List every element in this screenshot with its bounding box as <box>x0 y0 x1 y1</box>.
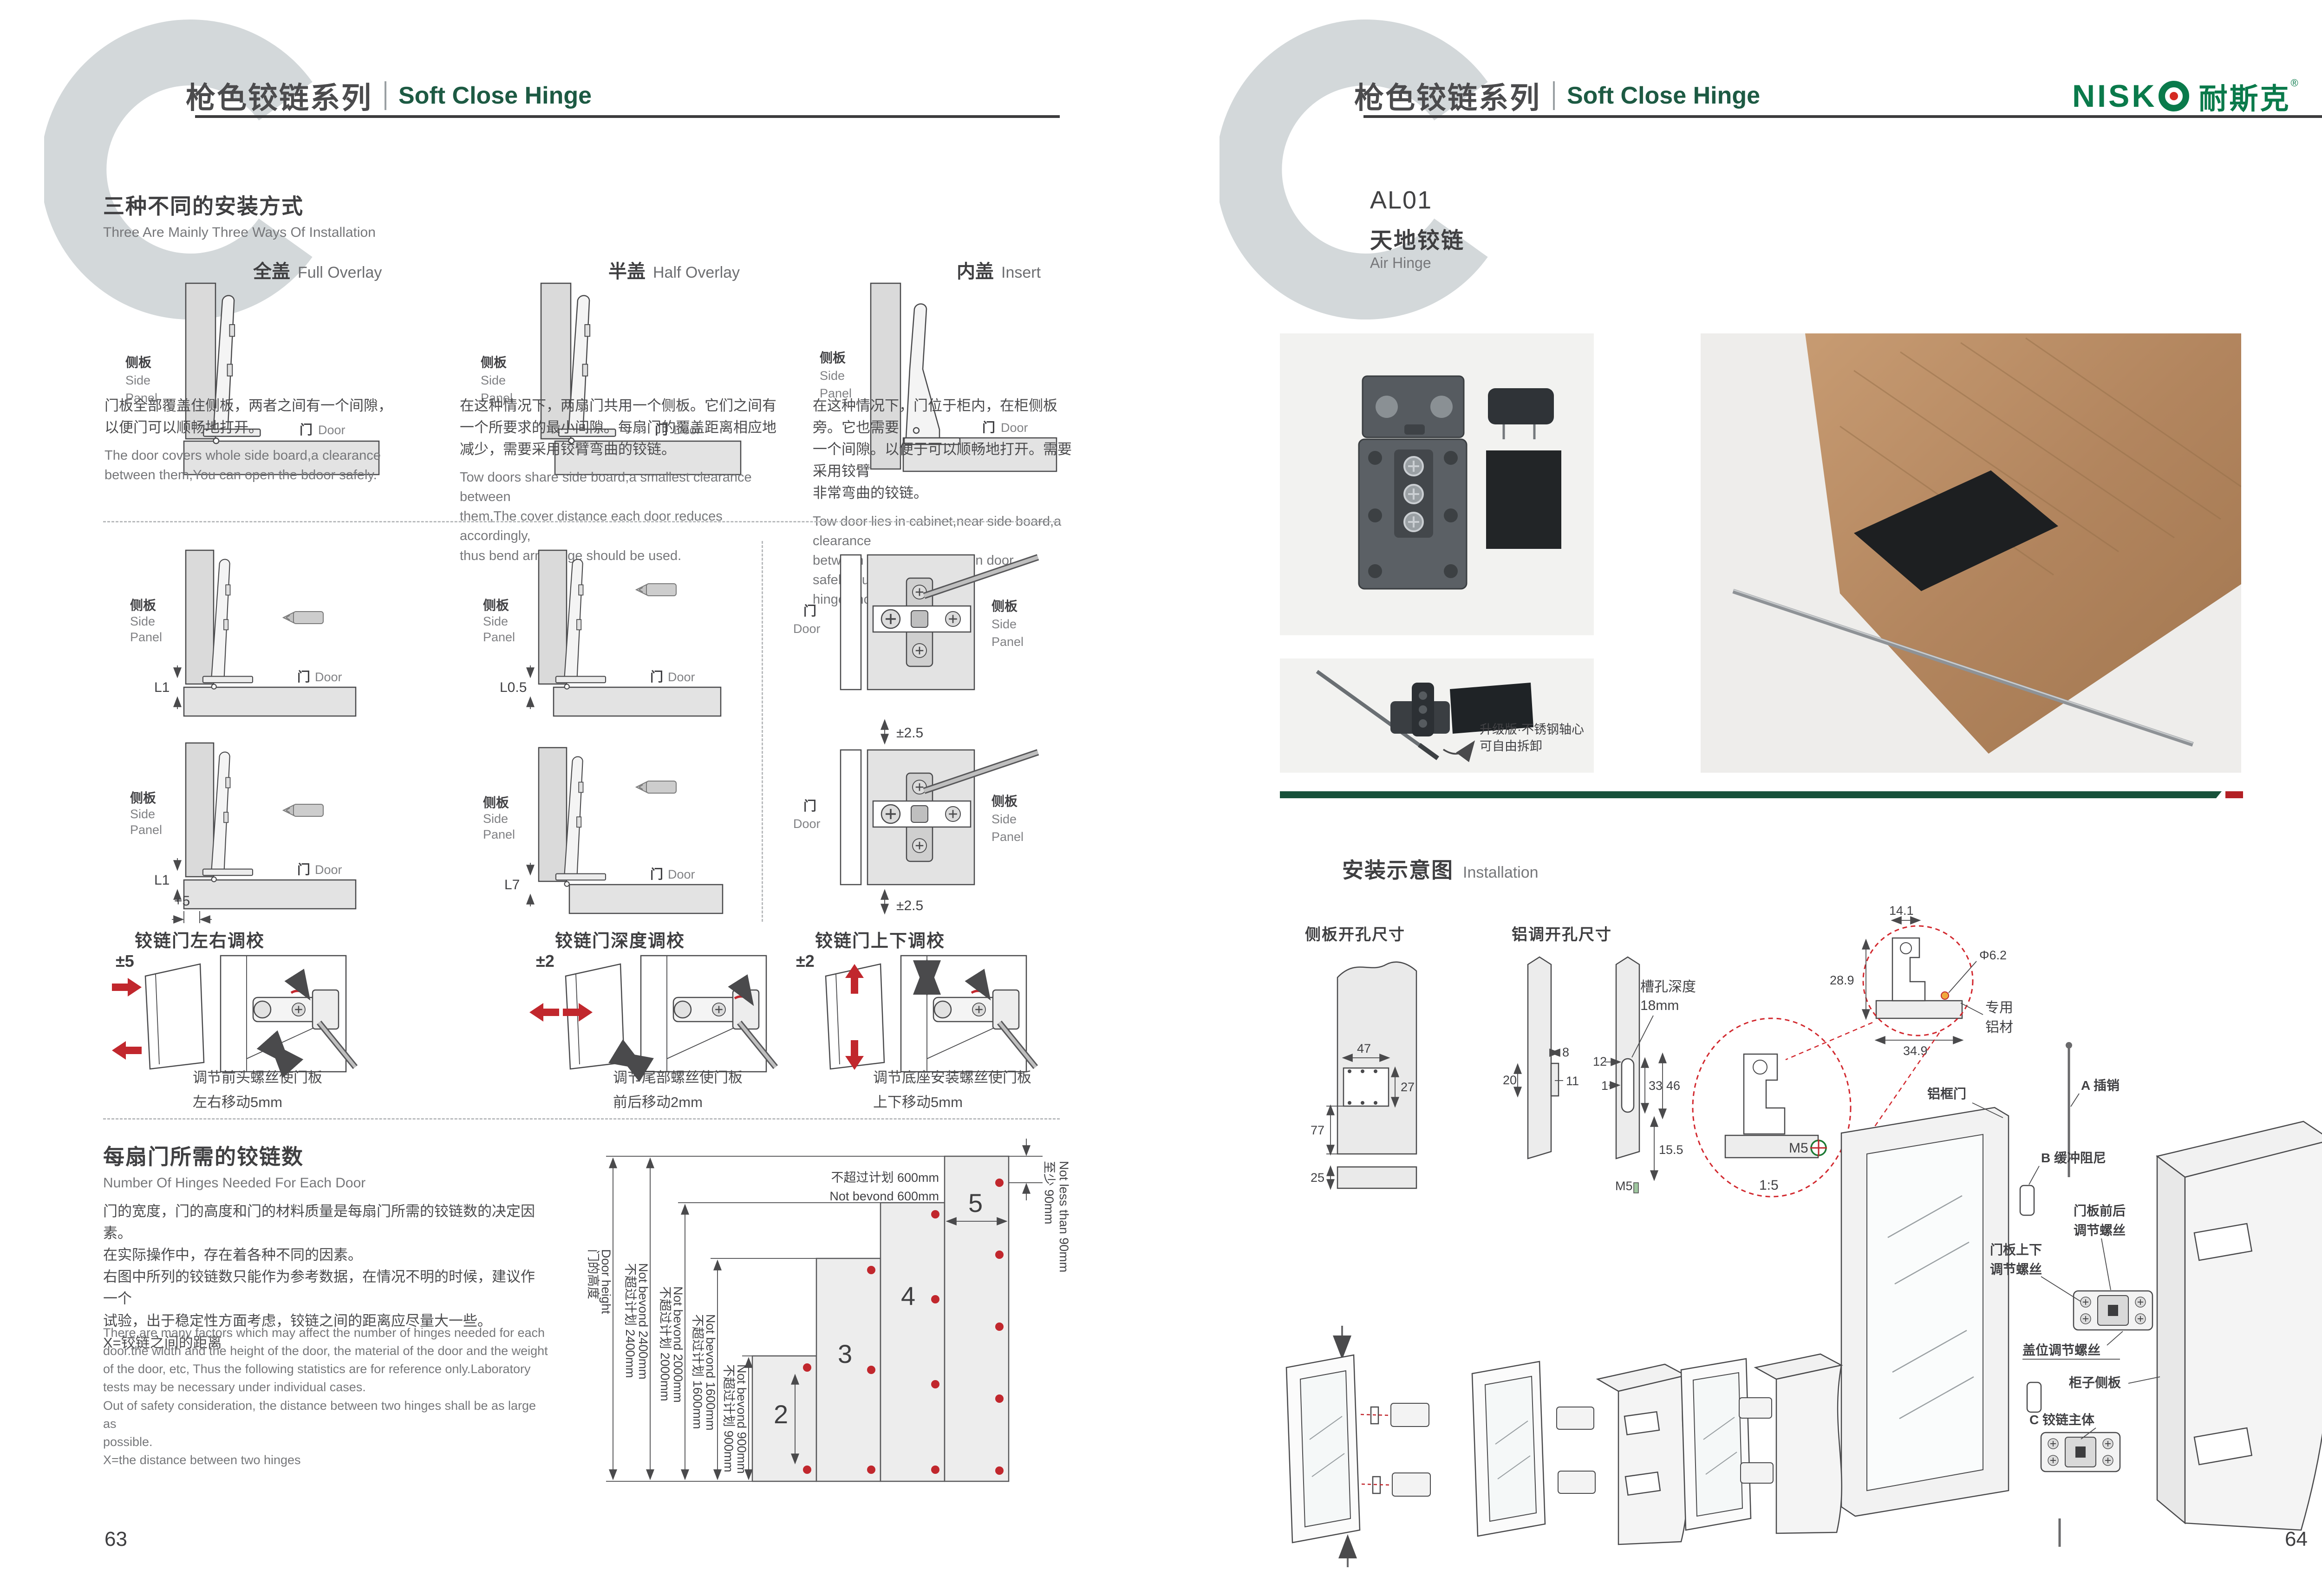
label-c-hinge: C 铰链主体 <box>2029 1412 2095 1427</box>
desc-cn: 在这种情况下，门位于柜内，在柜侧板旁。它也需要 一个间隙。以便于可以顺畅地打开。… <box>813 395 1073 504</box>
method-desc-half: 在这种情况下，两扇门共用一个侧板。它们之间有 一个所要求的最小间隙。每扇门的覆盖… <box>460 395 785 566</box>
side-panel-label-en1: Side <box>991 617 1017 631</box>
dashed-separator-2 <box>103 1118 1060 1120</box>
dashed-separator-1 <box>103 521 1060 522</box>
watermark-c-icon <box>1220 9 1521 330</box>
dim-77: 77 <box>1311 1123 1324 1137</box>
hinge-count-title: 每扇门所需的铰链数 Number Of Hinges Needed For Ea… <box>103 1140 365 1191</box>
side-drill-title: 侧板开孔尺寸 <box>1305 922 1405 945</box>
side-drill-diagram: 47 27 77 25 <box>1296 945 1463 1205</box>
hinge-count-chart: 2 3 4 5 门的高度 Door height 不超过计划 2400mm No… <box>534 1133 1105 1542</box>
dim-plus5: +5 <box>174 893 190 909</box>
limit-2000-cn: 不超过计划 2000mm <box>658 1286 672 1401</box>
product-name-cn: 天地铰链 <box>1370 222 1465 254</box>
dim-46: 46 <box>1666 1079 1680 1093</box>
profile-label-2: 铝材 <box>1985 1020 2013 1035</box>
door-label-en: Door <box>668 670 695 684</box>
width-limit-en: Not bevond 600mm <box>829 1189 939 1203</box>
limit-1600-en: Not bevond 1600mm <box>704 1314 717 1431</box>
plate-diagram-2: ±2.5 ±2.5 门 Door 侧板 Side Panel <box>785 715 1063 919</box>
dim-diagram-l05: L0.5 侧板 Side Panel 门 Door <box>469 546 729 722</box>
side-panel-label-en2: Panel <box>130 823 162 837</box>
ways-title-en: Three Are Mainly Three Ways Of Installat… <box>103 225 376 241</box>
dim-diagram-l1: L1 侧板 Side Panel 门 Door <box>116 546 376 722</box>
product-name-en: Air Hinge <box>1370 254 1431 272</box>
adjust-diagram-lr: ±5 <box>109 943 369 1087</box>
installation-title-cn: 安装示意图 <box>1342 853 1454 884</box>
ways-section-title: 三种不同的安装方式 Three Are Mainly Three Ways Of… <box>103 189 376 241</box>
adjust-range: ±2 <box>796 951 815 971</box>
adjust-range: ±2 <box>536 951 554 971</box>
dim-47: 47 <box>1357 1042 1371 1055</box>
dim-l05: L0.5 <box>500 680 527 695</box>
hinge-count-title-en: Number Of Hinges Needed For Each Door <box>103 1175 365 1191</box>
door-label-en: Door <box>793 817 821 831</box>
caption-line1: 调节尾部螺丝使门板 <box>613 1066 743 1090</box>
door-label-en: Door <box>315 863 342 877</box>
top-margin-en: Not less than 90mm <box>1057 1161 1071 1272</box>
dim-plate-top: ±2.5 <box>896 725 923 741</box>
side-panel-label-en2: Panel <box>130 630 162 644</box>
method-desc-full: 门板全部覆盖住侧板，两者之间有一个间隙， 以便门可以顺畅地打开。 The doo… <box>104 395 430 485</box>
ways-title-cn: 三种不同的安装方式 <box>103 189 376 220</box>
dim-m5: M5 <box>1615 1179 1633 1193</box>
door-label-en: Door <box>315 670 342 684</box>
slot-depth-value: 18mm <box>1640 998 1679 1013</box>
desc-cn: 门板全部覆盖住侧板，两者之间有一个间隙， 以便门可以顺畅地打开。 <box>104 395 430 438</box>
adjust-caption-ud: 调节底座安装螺丝使门板 上下移动5mm <box>873 1066 1031 1114</box>
label-alu-door: 铝框门 <box>1927 1087 1966 1101</box>
dim-diagram-l7: L7 侧板 Side Panel 门 Door <box>469 743 729 919</box>
door-label-cn: 门 <box>297 670 310 684</box>
dim-l1: L1 <box>154 873 170 888</box>
brand-logo: NISK 耐斯克 ® <box>2072 75 2298 117</box>
header-rule-left <box>195 115 1060 118</box>
profile-label-1: 专用 <box>1985 1000 2013 1016</box>
dim-20: 20 <box>1503 1073 1517 1087</box>
dim-11: 11 <box>1566 1074 1579 1088</box>
series-title-en: Soft Close Hinge <box>1567 82 1760 110</box>
dim-l7: L7 <box>504 877 520 892</box>
caption-line2: 左右移动5mm <box>193 1090 322 1115</box>
page-header-left: 枪色铰链系列 Soft Close Hinge <box>186 74 592 117</box>
top-margin-cn: 至少 90mm <box>1042 1161 1056 1225</box>
limit-900-en: Not bevond 900mm <box>735 1364 749 1474</box>
side-panel-label-cn: 侧板 <box>483 598 509 612</box>
width-limit-cn: 不超过计划 600mm <box>831 1171 939 1185</box>
product-code: AL01 <box>1370 186 1432 215</box>
logo-latin: NISK <box>2072 78 2157 114</box>
door-label-en: Door <box>793 622 821 636</box>
product-photo-rod: 升级版·不锈钢轴心 可自由拆卸 <box>1280 658 1594 773</box>
side-panel-label-en2: Panel <box>991 830 1024 844</box>
divider-red-bar <box>2225 791 2243 798</box>
page-header-right: 枪色铰链系列 Soft Close Hinge <box>1354 74 1760 117</box>
caption-line2: 前后移动2mm <box>613 1090 743 1115</box>
dim-33: 33 <box>1649 1079 1663 1093</box>
adjust-caption-depth: 调节尾部螺丝使门板 前后移动2mm <box>613 1066 743 1114</box>
header-divider <box>1553 81 1555 110</box>
divider-green-bar <box>1280 791 2222 798</box>
hinge-count-desc-en: There are many factors which may affect … <box>103 1324 549 1469</box>
dim-l1: L1 <box>154 680 170 695</box>
product-photo-parts <box>1280 333 1594 635</box>
side-panel-label-en1: Side <box>483 812 508 826</box>
label-b-damper: B 缓冲阻尼 <box>2041 1151 2106 1165</box>
side-panel-label-en2: Panel <box>483 630 515 644</box>
door-height-label-cn: 门的高度 <box>586 1249 600 1299</box>
side-panel-label-en1: Side <box>130 807 155 821</box>
door-label-cn: 门 <box>650 867 663 881</box>
side-panel-label-cn: 侧板 <box>481 355 507 370</box>
caption-line1: 调节前头螺丝使门板 <box>193 1066 322 1090</box>
side-panel-label-en1: Side <box>130 614 155 628</box>
side-panel-label-cn: 侧板 <box>991 794 1018 808</box>
side-panel-label-en1: Side <box>483 614 508 628</box>
side-panel-label-en1: Side <box>991 812 1017 826</box>
hinge-count-title-cn: 每扇门所需的铰链数 <box>103 1140 365 1171</box>
desc-cn: 在这种情况下，两扇门共用一个侧板。它们之间有 一个所要求的最小间隙。每扇门的覆盖… <box>460 395 785 460</box>
side-panel-label-cn: 侧板 <box>125 355 151 370</box>
side-panel-label-cn: 侧板 <box>130 791 156 805</box>
side-panel-label-en1: Side <box>125 373 150 387</box>
limit-2400-cn: 不超过计划 2400mm <box>623 1263 637 1378</box>
photo-note-1: 升级版·不锈钢轴心 <box>1480 723 1584 736</box>
plate-diagram-1: 门 Door 侧板 Side Panel <box>785 546 1063 699</box>
series-title-cn: 枪色铰链系列 <box>1354 74 1541 117</box>
product-photo-wood <box>1701 333 2241 773</box>
door-label-cn: 门 <box>297 862 310 877</box>
logo-registered-mark: ® <box>2290 77 2298 89</box>
dim-25: 25 <box>1311 1171 1324 1185</box>
bar-count-5: 5 <box>968 1188 983 1218</box>
side-panel-label-en2: Panel <box>483 827 515 841</box>
limit-900-cn: 不超过计划 900mm <box>722 1364 736 1472</box>
door-height-label-en: Door height <box>599 1249 613 1314</box>
detail-scale: 1:5 <box>1759 1178 1779 1193</box>
adjust-diagram-depth: ±2 <box>529 943 789 1087</box>
adjust-range: ±5 <box>116 951 134 971</box>
alu-drill-title: 铝调开孔尺寸 <box>1512 922 1612 945</box>
dashed-separator-vertical <box>762 541 763 922</box>
side-panel-label-cn: 侧板 <box>130 598 156 612</box>
door-label-cn: 门 <box>803 604 816 618</box>
label-fb-screw-2: 调节螺丝 <box>2074 1223 2126 1238</box>
dim-14-1: 14.1 <box>1889 904 1914 918</box>
side-panel-label-cn: 侧板 <box>483 795 509 810</box>
dim-1: 1 <box>1601 1079 1608 1093</box>
side-panel-label-cn: 侧板 <box>991 599 1018 613</box>
page-number-right: 64 <box>2285 1528 2308 1551</box>
label-ud-screw-2: 调节螺丝 <box>1990 1262 2042 1277</box>
series-title-cn: 枪色铰链系列 <box>186 74 372 117</box>
dim-12: 12 <box>1593 1055 1607 1068</box>
door-label-cn: 门 <box>650 670 663 684</box>
door-label-en: Door <box>668 867 695 881</box>
series-title-en: Soft Close Hinge <box>398 82 592 110</box>
detail-m5: M5 <box>1789 1140 1808 1156</box>
page-number-left: 63 <box>104 1528 127 1551</box>
side-panel-label-cn: 侧板 <box>820 351 846 365</box>
adjust-diagram-ud: ±2 <box>789 943 1050 1087</box>
limit-1600-cn: 不超过计划 1600mm <box>691 1314 704 1429</box>
logo-dot-icon <box>2170 92 2178 100</box>
door-label-cn: 门 <box>803 799 816 813</box>
dim-28-9: 28.9 <box>1830 973 1854 987</box>
label-fb-screw-1: 门板前后 <box>2074 1203 2126 1218</box>
desc-en: The door covers whole side board,a clear… <box>104 446 430 485</box>
side-panel-label-en1: Side <box>481 373 506 387</box>
side-panel-label-en1: Side <box>820 369 845 383</box>
header-rule-right <box>1363 115 2322 118</box>
label-a-pin: A 插销 <box>2081 1078 2120 1093</box>
label-overlay-screw: 盖位调节螺丝 <box>2022 1342 2100 1357</box>
caption-line2: 上下移动5mm <box>873 1090 1031 1115</box>
adjust-caption-lr: 调节前头螺丝使门板 左右移动5mm <box>193 1066 322 1114</box>
installation-title: 安装示意图 Installation <box>1342 853 1539 884</box>
dim-27: 27 <box>1401 1080 1415 1094</box>
dim-plate-bottom: ±2.5 <box>896 898 923 913</box>
dim-dia-6-2: Φ6.2 <box>1979 948 2007 962</box>
exploded-diagram: 铝框门 A 插销 B 缓冲阻尼 门板前后 调节螺丝 门板上下 调节螺丝 盖位调节… <box>1823 1038 2322 1549</box>
dim-8: 8 <box>1562 1045 1569 1059</box>
catalog-spread: 枪色铰链系列 Soft Close Hinge 三种不同的安装方式 Three … <box>0 0 2322 1596</box>
label-cabinet-side: 柜子侧板 <box>2069 1375 2121 1390</box>
assembly-sequence-diagram <box>1272 1323 1853 1570</box>
limit-2000-en: Not bevond 2000mm <box>671 1286 685 1403</box>
logo-o-icon <box>2159 81 2189 111</box>
bar-count-2: 2 <box>774 1400 788 1429</box>
caption-line1: 调节底座安装螺丝使门板 <box>873 1066 1031 1090</box>
side-panel-label-en2: Panel <box>991 635 1024 649</box>
limit-2400-en: Not bevond 2400mm <box>636 1263 650 1380</box>
photo-note-2: 可自由拆卸 <box>1480 739 1542 753</box>
bar-count-4: 4 <box>901 1281 915 1310</box>
dim-diagram-l1-plus5: L1 +5 侧板 Side Panel 门 Door <box>116 738 376 924</box>
dim-15-5: 15.5 <box>1659 1143 1683 1157</box>
bar-count-3: 3 <box>838 1339 852 1368</box>
installation-title-en: Installation <box>1463 864 1539 882</box>
header-divider <box>385 81 386 110</box>
logo-cn: 耐斯克 <box>2198 75 2290 117</box>
label-ud-screw-1: 门板上下 <box>1990 1243 2042 1257</box>
